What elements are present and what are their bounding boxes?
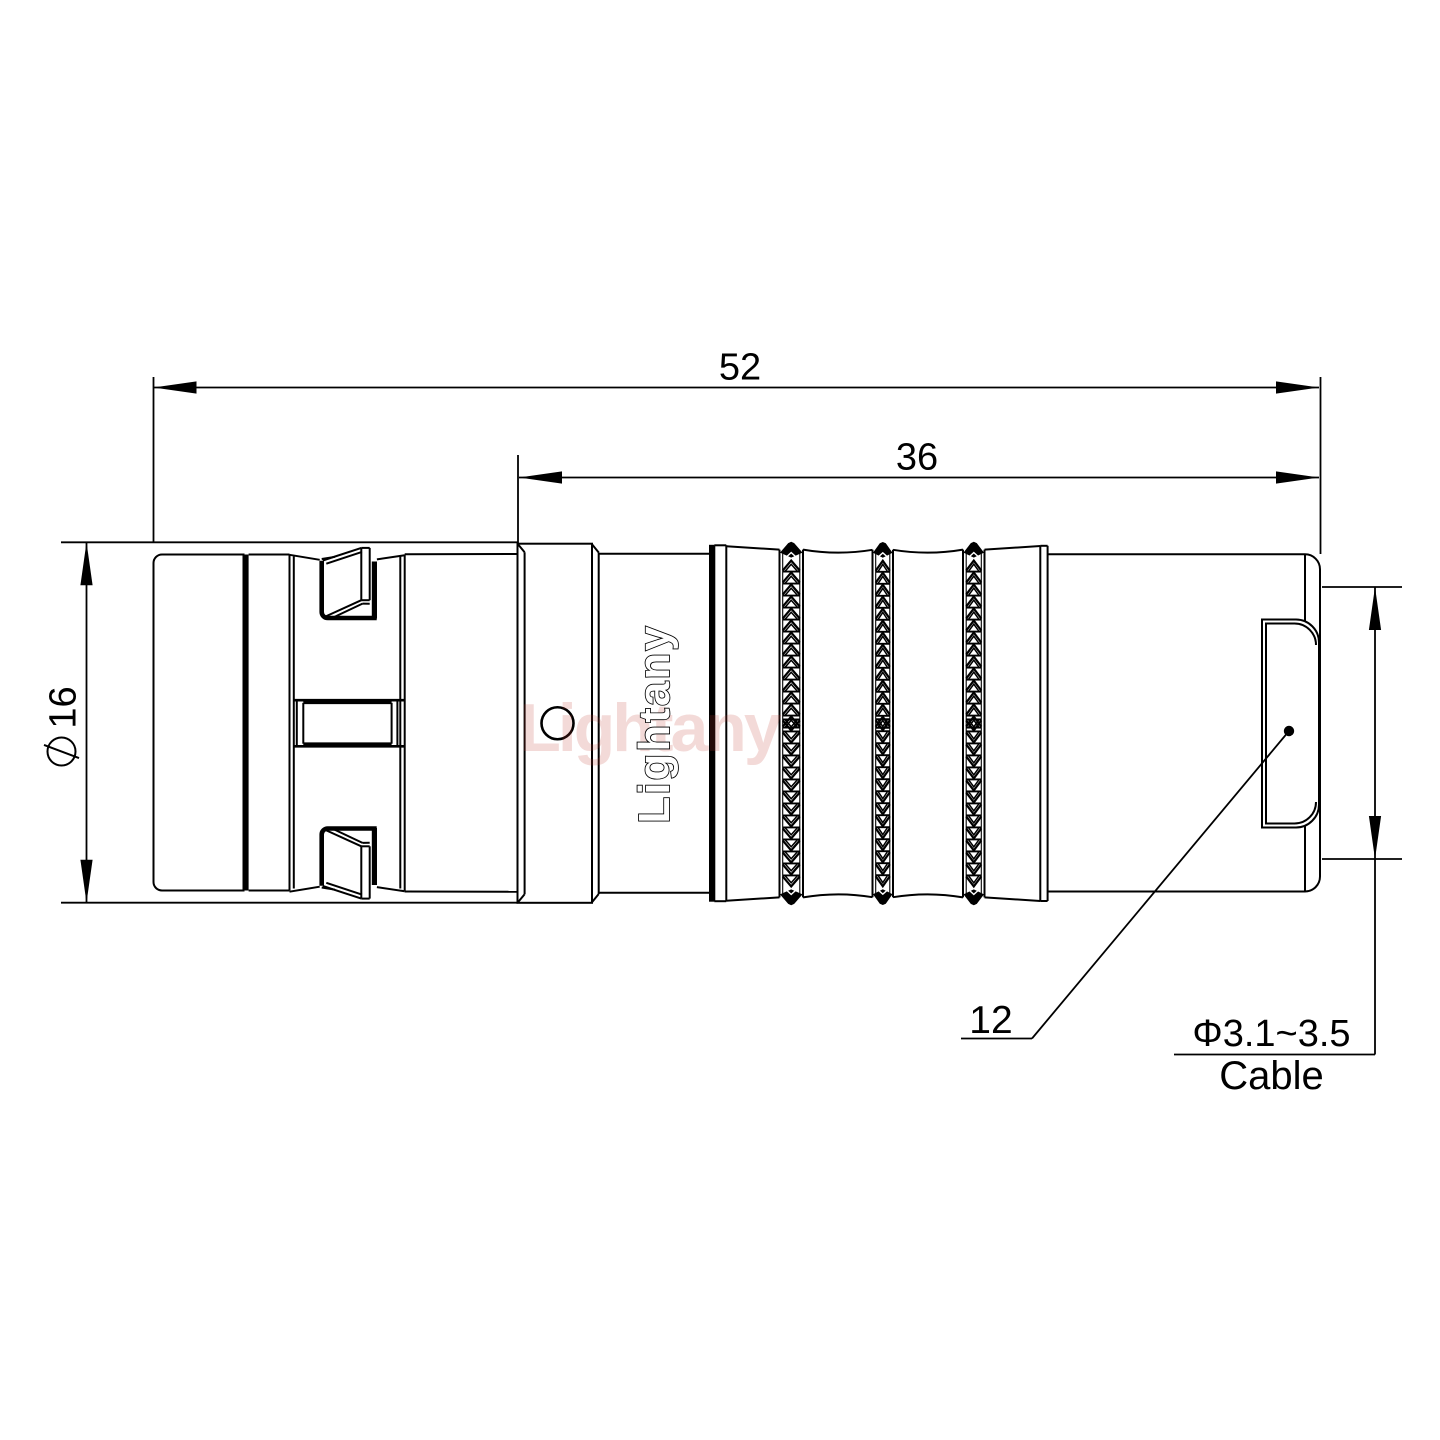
svg-text:Cable: Cable: [1219, 1054, 1324, 1098]
svg-text:12: 12: [969, 999, 1012, 1042]
svg-text:Lightany: Lightany: [630, 624, 679, 823]
svg-text:36: 36: [896, 437, 938, 479]
svg-text:52: 52: [719, 347, 761, 389]
svg-text:16: 16: [43, 686, 85, 728]
svg-text:Φ3.1~3.5: Φ3.1~3.5: [1192, 1013, 1350, 1055]
